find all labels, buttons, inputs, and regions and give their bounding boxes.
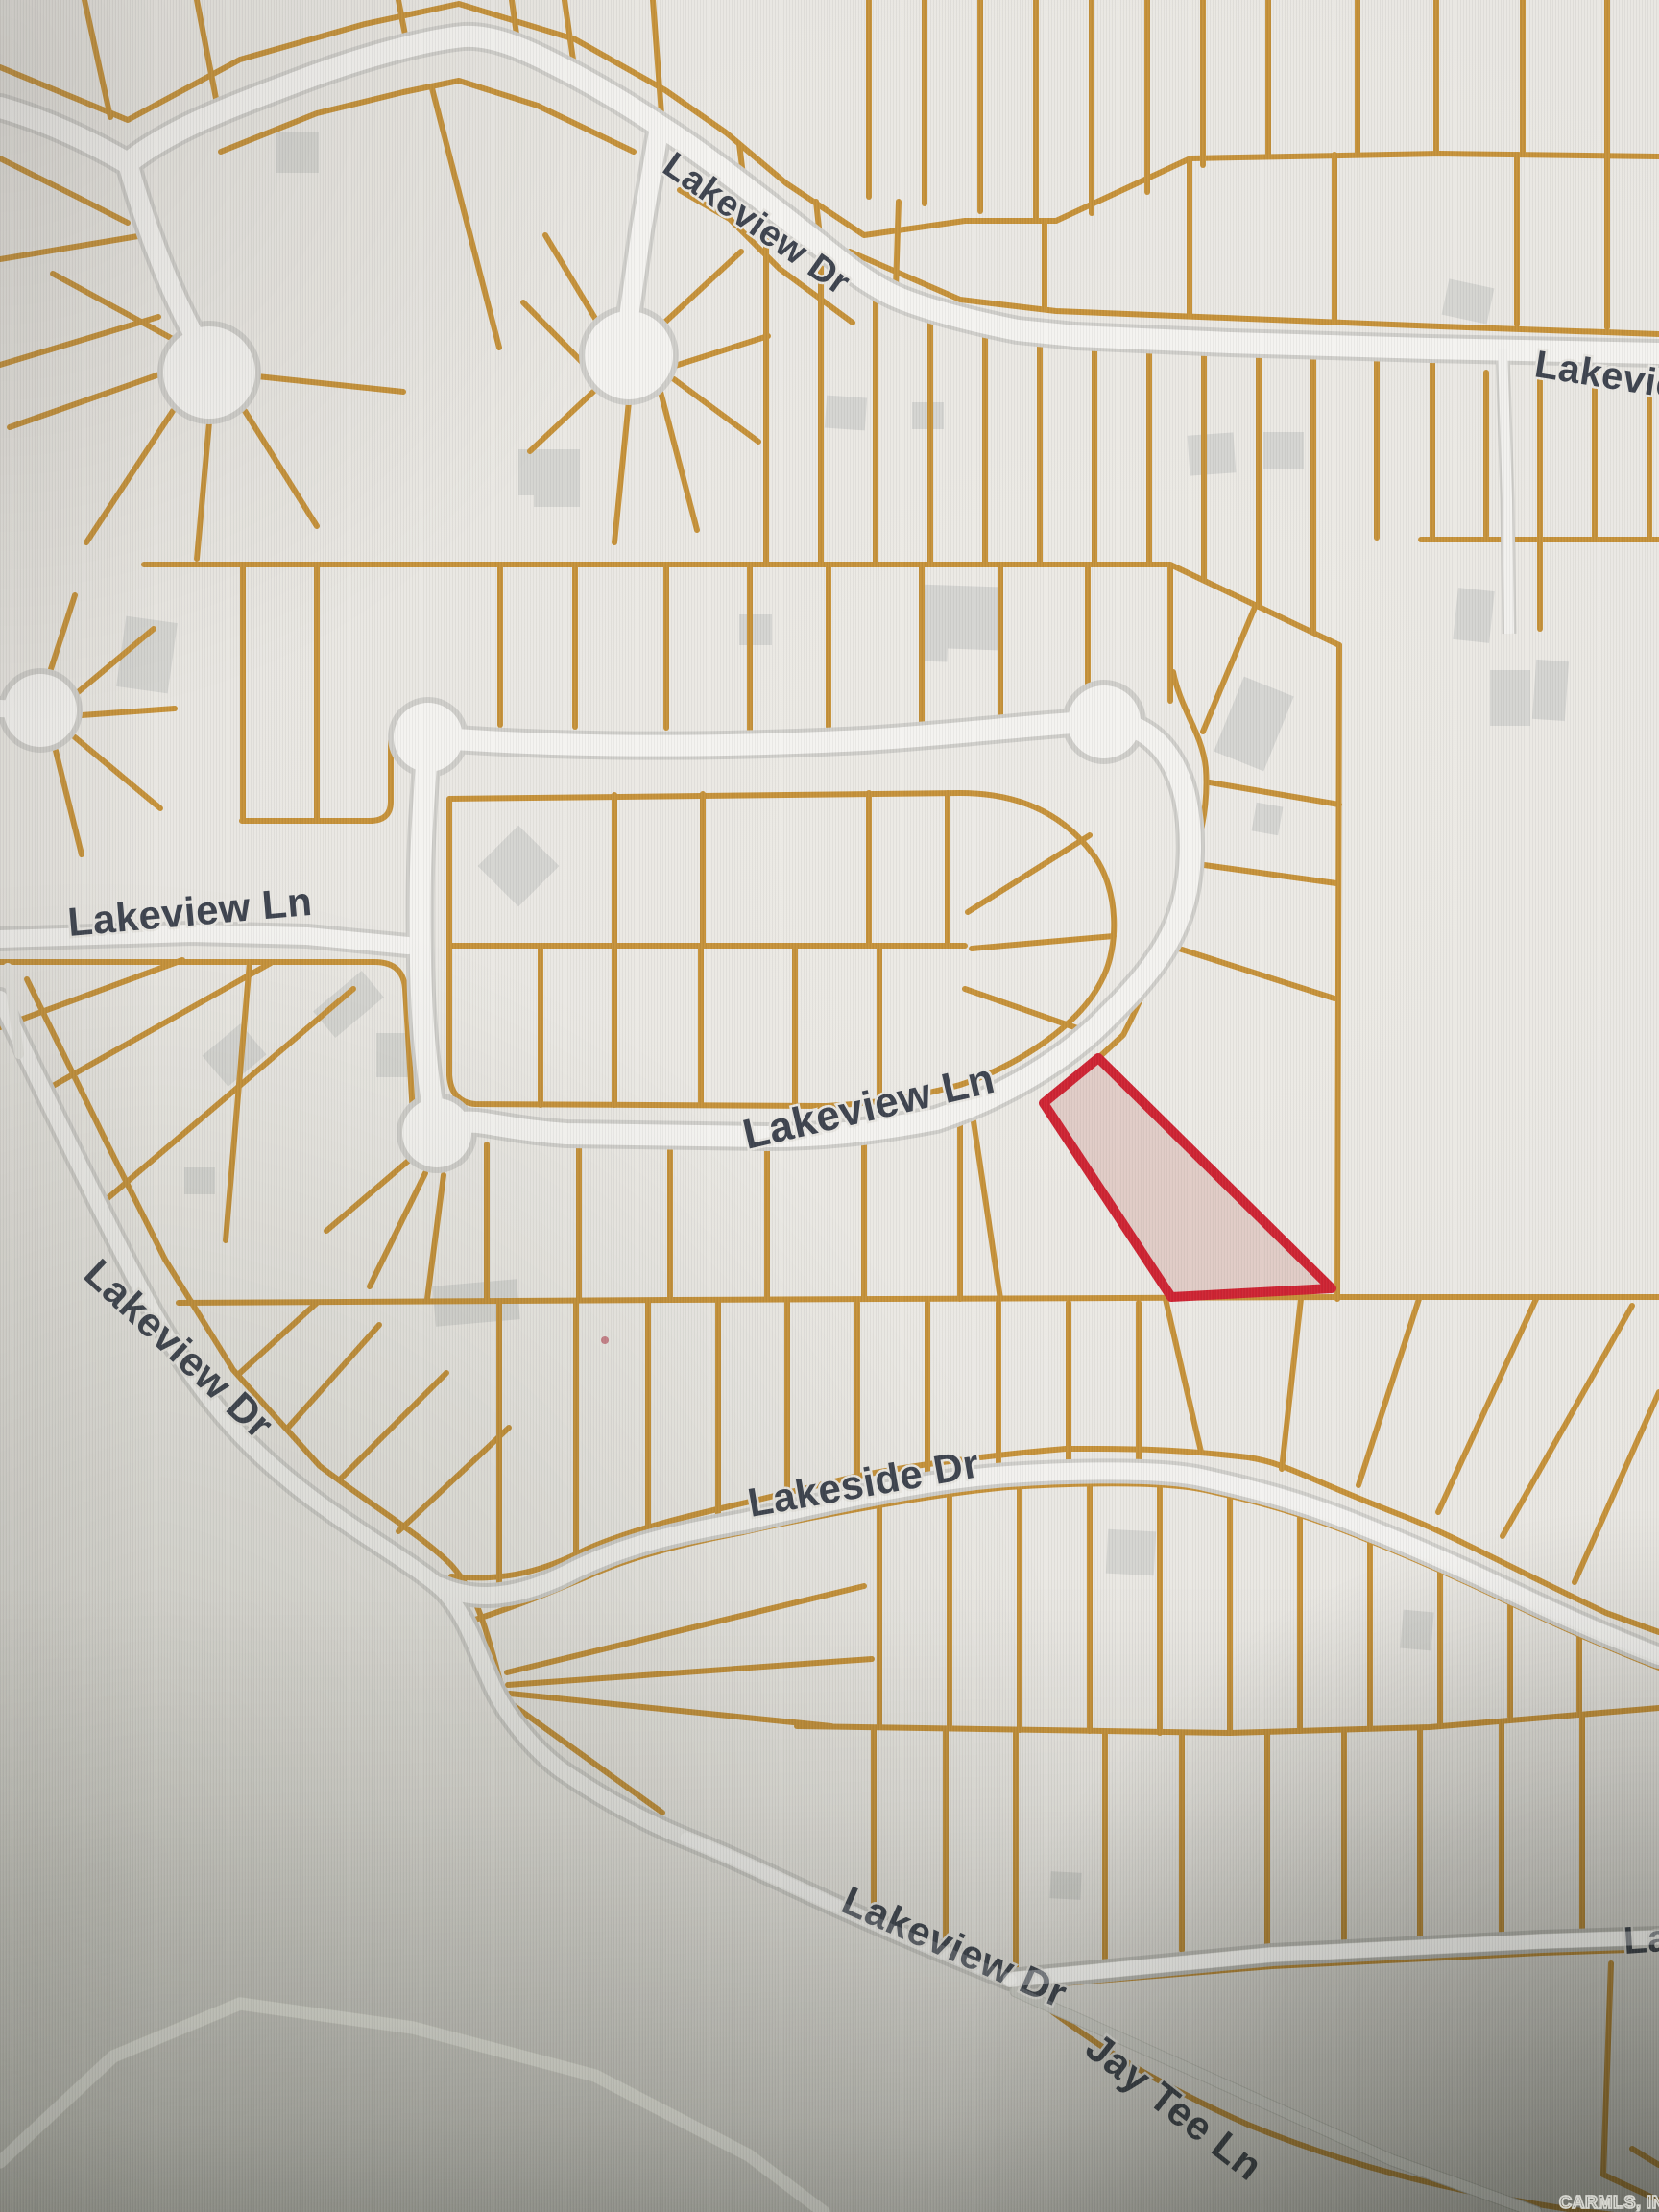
svg-text:CARMLS, INC: CARMLS, INC — [1559, 2193, 1659, 2212]
